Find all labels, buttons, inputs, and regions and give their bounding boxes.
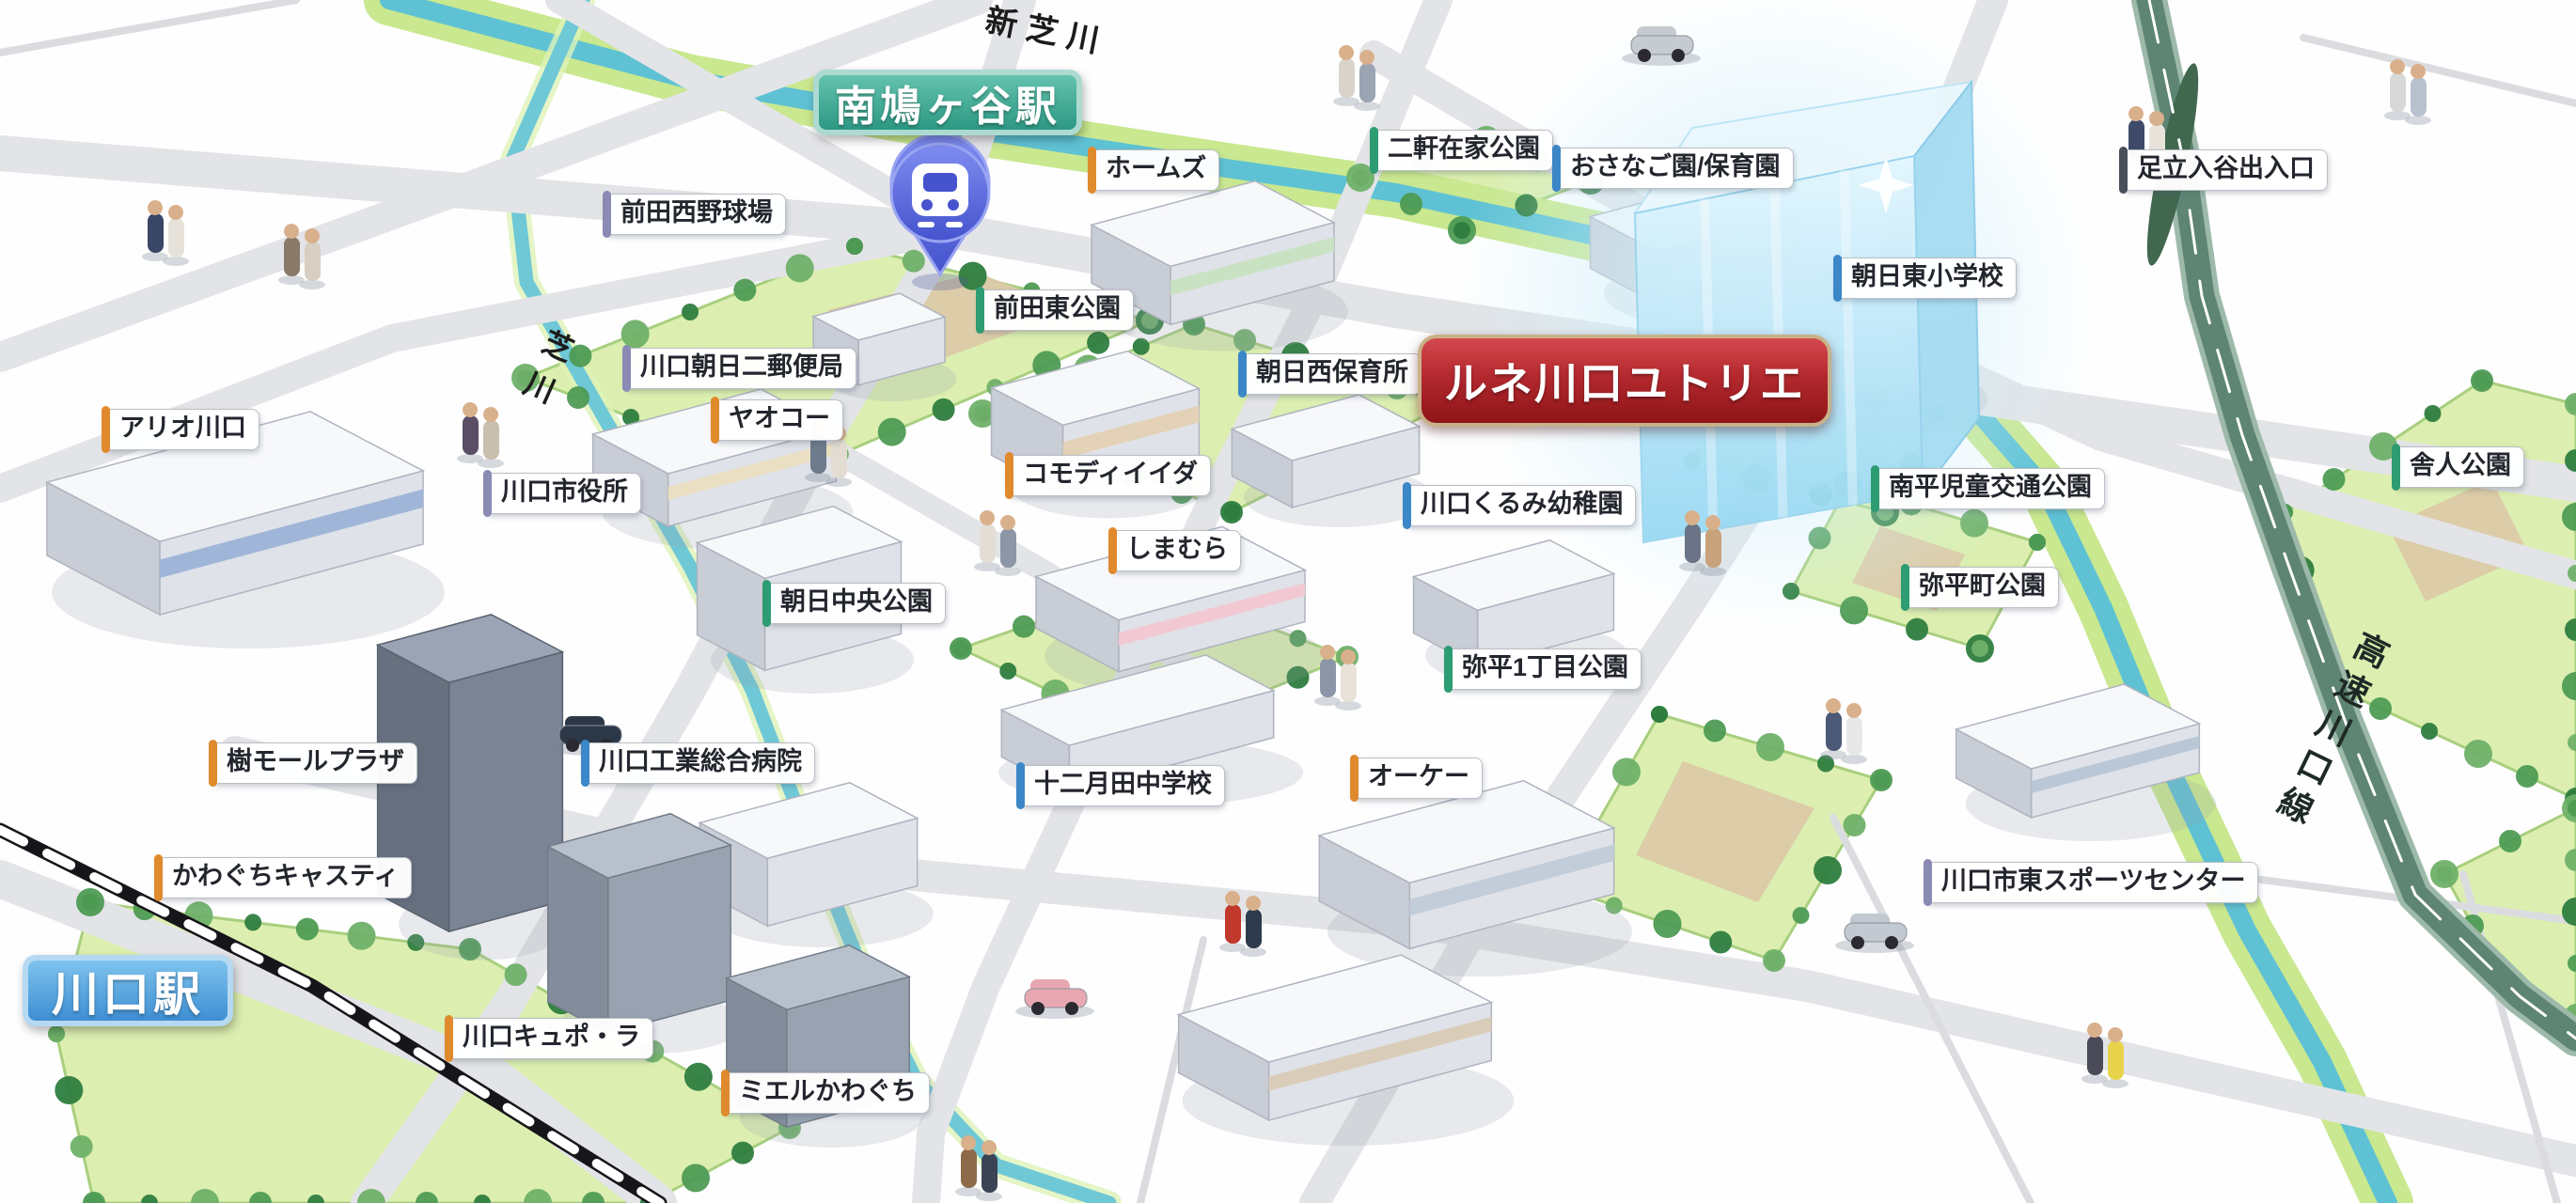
station-badge-minamihatogaya: 南鳩ヶ谷駅 <box>813 70 1082 135</box>
landmark-label-text: 二軒在家公園 <box>1388 134 1540 163</box>
education-category-bar <box>1016 762 1025 809</box>
landmark-label: 舎人公園 <box>2394 446 2524 488</box>
landmark-label-text: 樹モールプラザ <box>227 747 404 775</box>
landmark-label-text: おさなご園/保育園 <box>1570 152 1781 180</box>
landmark-label: 弥平町公園 <box>1903 567 2059 608</box>
landmark-label: 川口市役所 <box>485 473 641 514</box>
car-figure <box>1835 914 1914 953</box>
landmark-label-text: 南平児童交通公園 <box>1889 473 2092 501</box>
landmark-label-text: 十二月田中学校 <box>1034 770 1212 798</box>
pedestrian-figures <box>142 200 189 266</box>
landmark-label-text: 朝日西保育所 <box>1256 358 1408 386</box>
landmark-label: 朝日中央公園 <box>764 583 946 624</box>
commercial-category-bar <box>711 397 719 444</box>
landmark-label: かわぐちキャスティ <box>156 857 412 898</box>
landmark-label-text: 舎人公園 <box>2410 451 2511 479</box>
landmark-label: アリオ川口 <box>103 409 259 450</box>
park-category-bar <box>1871 465 1879 512</box>
landmark-label-text: 川口工業総合病院 <box>599 747 802 775</box>
commercial-category-bar <box>102 406 110 453</box>
education-category-bar <box>581 740 589 787</box>
landmark-label: コモディイイダ <box>1007 455 1211 496</box>
commercial-category-bar <box>209 740 217 787</box>
education-category-bar <box>1833 255 1842 302</box>
landmark-label-text: 朝日中央公園 <box>780 587 933 616</box>
park-category-bar <box>1370 127 1378 174</box>
pedestrian-figures <box>1820 698 1867 764</box>
education-category-bar <box>1238 351 1247 398</box>
commercial-category-bar <box>1350 755 1359 802</box>
landmark-label: 前田東公園 <box>978 289 1134 331</box>
landmark-label-text: 前田東公園 <box>994 294 1121 322</box>
landmark-label: 十二月田中学校 <box>1018 765 1225 806</box>
landmark-label: 二軒在家公園 <box>1372 130 1553 171</box>
landmark-label: 川口朝日二郵便局 <box>624 348 856 389</box>
landmark-label-text: 川口くるみ幼稚園 <box>1421 490 1623 518</box>
public-category-bar <box>603 191 611 238</box>
landmark-label-text: ホームズ <box>1106 154 1206 182</box>
pedestrian-figures <box>457 402 504 468</box>
landmark-label-text: 前田西野球場 <box>620 198 773 227</box>
landmark-label-text: コモディイイダ <box>1023 460 1198 488</box>
landmark-label: 川口工業総合病院 <box>583 742 815 784</box>
landmark-label: しまむら <box>1110 530 1241 571</box>
park-category-bar <box>762 580 771 627</box>
landmark-label-text: 川口朝日二郵便局 <box>640 352 843 381</box>
landmark-label: 川口くるみ幼稚園 <box>1405 485 1636 526</box>
education-category-bar <box>1403 482 1411 529</box>
public-category-bar <box>622 345 631 392</box>
landmark-label: 川口市東スポーツセンター <box>1925 862 2258 903</box>
commercial-category-bar <box>721 1070 730 1117</box>
park-category-bar <box>2392 444 2400 491</box>
commercial-category-bar <box>1108 527 1117 574</box>
landmark-label: ホームズ <box>1090 149 1219 191</box>
pedestrian-figures <box>2384 59 2431 125</box>
landmark-label: オーケー <box>1352 758 1483 799</box>
landmark-label: 南平児童交通公園 <box>1873 468 2105 509</box>
commercial-category-bar <box>1088 147 1096 194</box>
landmark-label-text: 朝日東小学校 <box>1851 262 2003 290</box>
landmark-label-text: ミエルかわぐち <box>739 1077 917 1105</box>
park-category-bar <box>1444 646 1453 693</box>
landmark-label: 川口キュポ・ラ <box>447 1018 653 1059</box>
landmark-label-text: オーケー <box>1368 762 1469 790</box>
landmark-label: ミエルかわぐち <box>723 1072 930 1114</box>
landmark-label-text: 弥平町公園 <box>1919 571 2046 600</box>
landmark-label-text: ヤオコー <box>729 404 830 432</box>
landmark-label-text: しまむら <box>1126 535 1228 563</box>
park-category-bar <box>1901 564 1909 611</box>
landmark-label-text: 川口市東スポーツセンター <box>1941 867 2245 895</box>
landmark-label-text: かわぐちキャスティ <box>172 862 399 890</box>
pedestrian-figures <box>1333 45 1380 111</box>
public-category-bar <box>1924 859 1932 906</box>
landmark-label-text: 弥平1丁目公園 <box>1462 653 1628 681</box>
commercial-category-bar <box>445 1015 453 1062</box>
commercial-category-bar <box>1005 452 1013 499</box>
public-category-bar <box>483 470 492 517</box>
landmark-label: ヤオコー <box>713 399 843 441</box>
landmark-label: 朝日東小学校 <box>1835 258 2017 299</box>
landmark-label: 足立入谷出入口 <box>2121 149 2328 191</box>
landmark-label: 前田西野球場 <box>605 194 786 235</box>
car-figure <box>1015 979 1094 1019</box>
landmark-label-text: 川口市役所 <box>501 477 628 506</box>
landmark-label: 樹モールプラザ <box>211 742 417 784</box>
landmark-label: 朝日西保育所 <box>1240 353 1422 395</box>
interchange-category-bar <box>2119 147 2128 194</box>
landmark-label: おさなご園/保育園 <box>1554 148 1794 189</box>
property-badge: ルネ川口ユトリエ <box>1418 335 1831 427</box>
landmark-label: 弥平1丁目公園 <box>1446 648 1641 690</box>
commercial-category-bar <box>154 854 163 901</box>
landmark-label-text: 足立入谷出入口 <box>2137 154 2315 182</box>
park-category-bar <box>976 287 984 334</box>
area-map: 前田西野球場ホームズ二軒在家公園おさなご園/保育園足立入谷出入口朝日東小学校前田… <box>0 0 2576 1203</box>
station-badge-kawaguchi: 川口駅 <box>23 955 233 1026</box>
landmark-label-text: アリオ川口 <box>119 414 246 442</box>
landmark-label-text: 川口キュポ・ラ <box>463 1023 640 1051</box>
education-category-bar <box>1552 145 1561 192</box>
